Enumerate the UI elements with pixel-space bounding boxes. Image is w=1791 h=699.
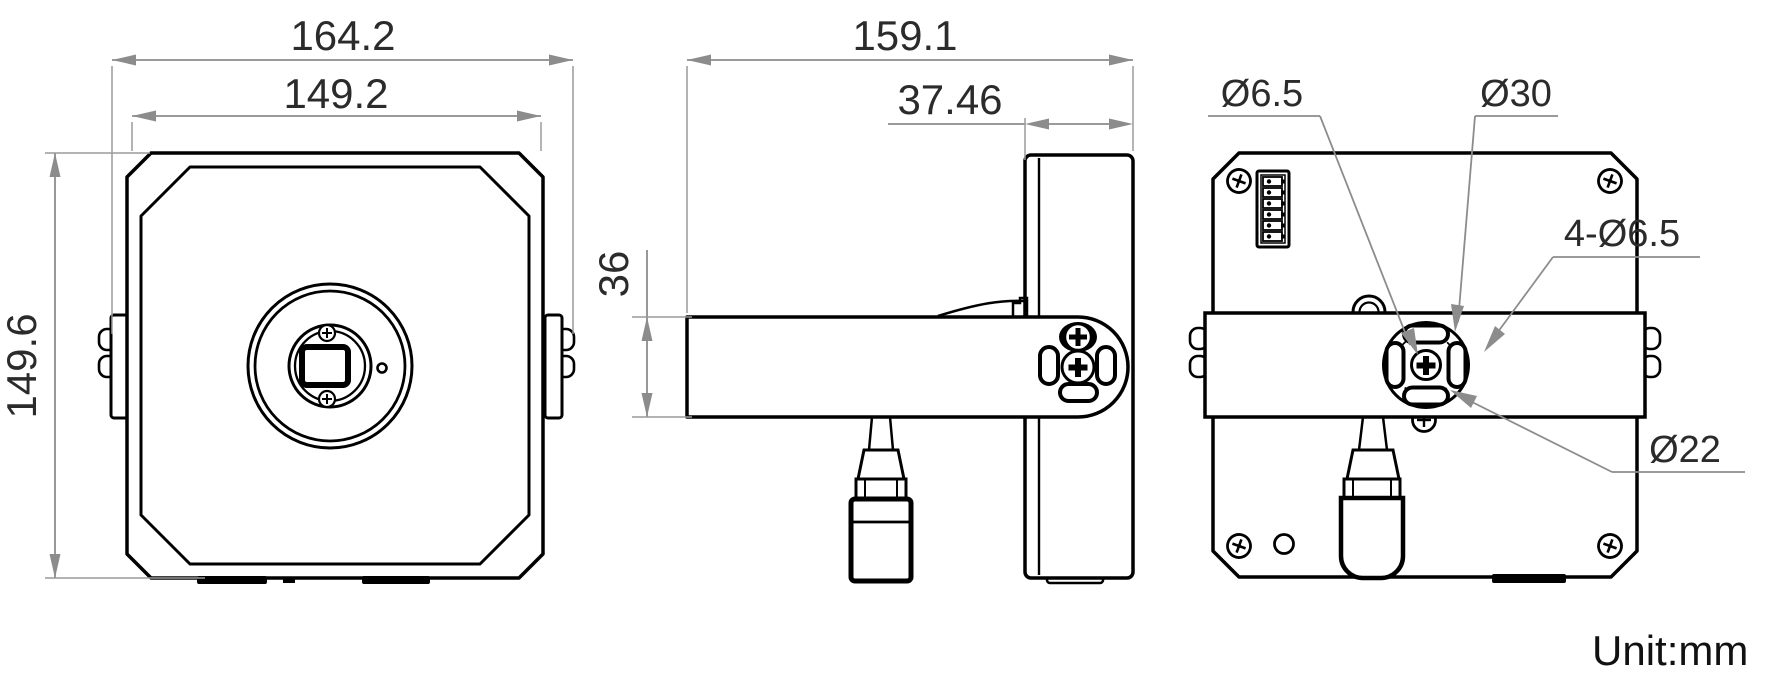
unit-note: Unit:mm bbox=[1592, 627, 1748, 674]
mount-slot-bottom bbox=[1404, 388, 1448, 405]
front-foot-left bbox=[197, 576, 267, 584]
dim-side-body-depth-text: 37.46 bbox=[897, 76, 1002, 123]
dim-front-body-width-text: 149.2 bbox=[283, 70, 388, 117]
mount-slot-right bbox=[1449, 343, 1466, 387]
rear-connector-plug bbox=[1341, 498, 1403, 578]
pivot-slot-right bbox=[1097, 347, 1115, 384]
dimensional-drawing: 164.2 149.2 149.6 bbox=[0, 0, 1791, 699]
rear-foot bbox=[1492, 574, 1566, 583]
rear-strain-relief bbox=[1347, 450, 1399, 479]
dim-side-bracket-height-text: 36 bbox=[590, 251, 637, 298]
front-foot-right bbox=[362, 576, 430, 584]
mount-screw-bottom-icon bbox=[319, 391, 335, 407]
drawing-canvas: 164.2 149.2 149.6 bbox=[0, 0, 1791, 699]
callout-mount-slots-text: 4-Ø6.5 bbox=[1564, 213, 1680, 255]
connector-plug bbox=[851, 499, 911, 581]
callout-center-screw-text: Ø6.5 bbox=[1221, 73, 1303, 115]
callout-mount-circle-text: Ø30 bbox=[1480, 73, 1552, 115]
dim-front-body-height-text: 149.6 bbox=[0, 313, 45, 418]
dim-side-total-depth-text: 159.1 bbox=[852, 12, 957, 59]
callout-slot-pitch-circle-text: Ø22 bbox=[1649, 429, 1721, 471]
dim-front-total-width-text: 164.2 bbox=[290, 12, 395, 59]
pivot-slot-left bbox=[1040, 347, 1058, 384]
pivot-slot-bottom bbox=[1060, 384, 1097, 401]
mount-screw-top-icon bbox=[319, 325, 335, 341]
terminal-block bbox=[1257, 171, 1289, 247]
cable-strain-relief bbox=[858, 450, 904, 479]
front-foot-center-notch bbox=[283, 577, 295, 583]
pivot-center-screw-cross bbox=[1069, 365, 1088, 371]
sensor-aperture bbox=[302, 347, 348, 385]
mount-slot-left bbox=[1387, 343, 1404, 387]
front-right-plate-body bbox=[545, 315, 562, 418]
pivot-top-screw-cross bbox=[1069, 335, 1087, 340]
mount-center-screw-cross bbox=[1417, 363, 1436, 369]
